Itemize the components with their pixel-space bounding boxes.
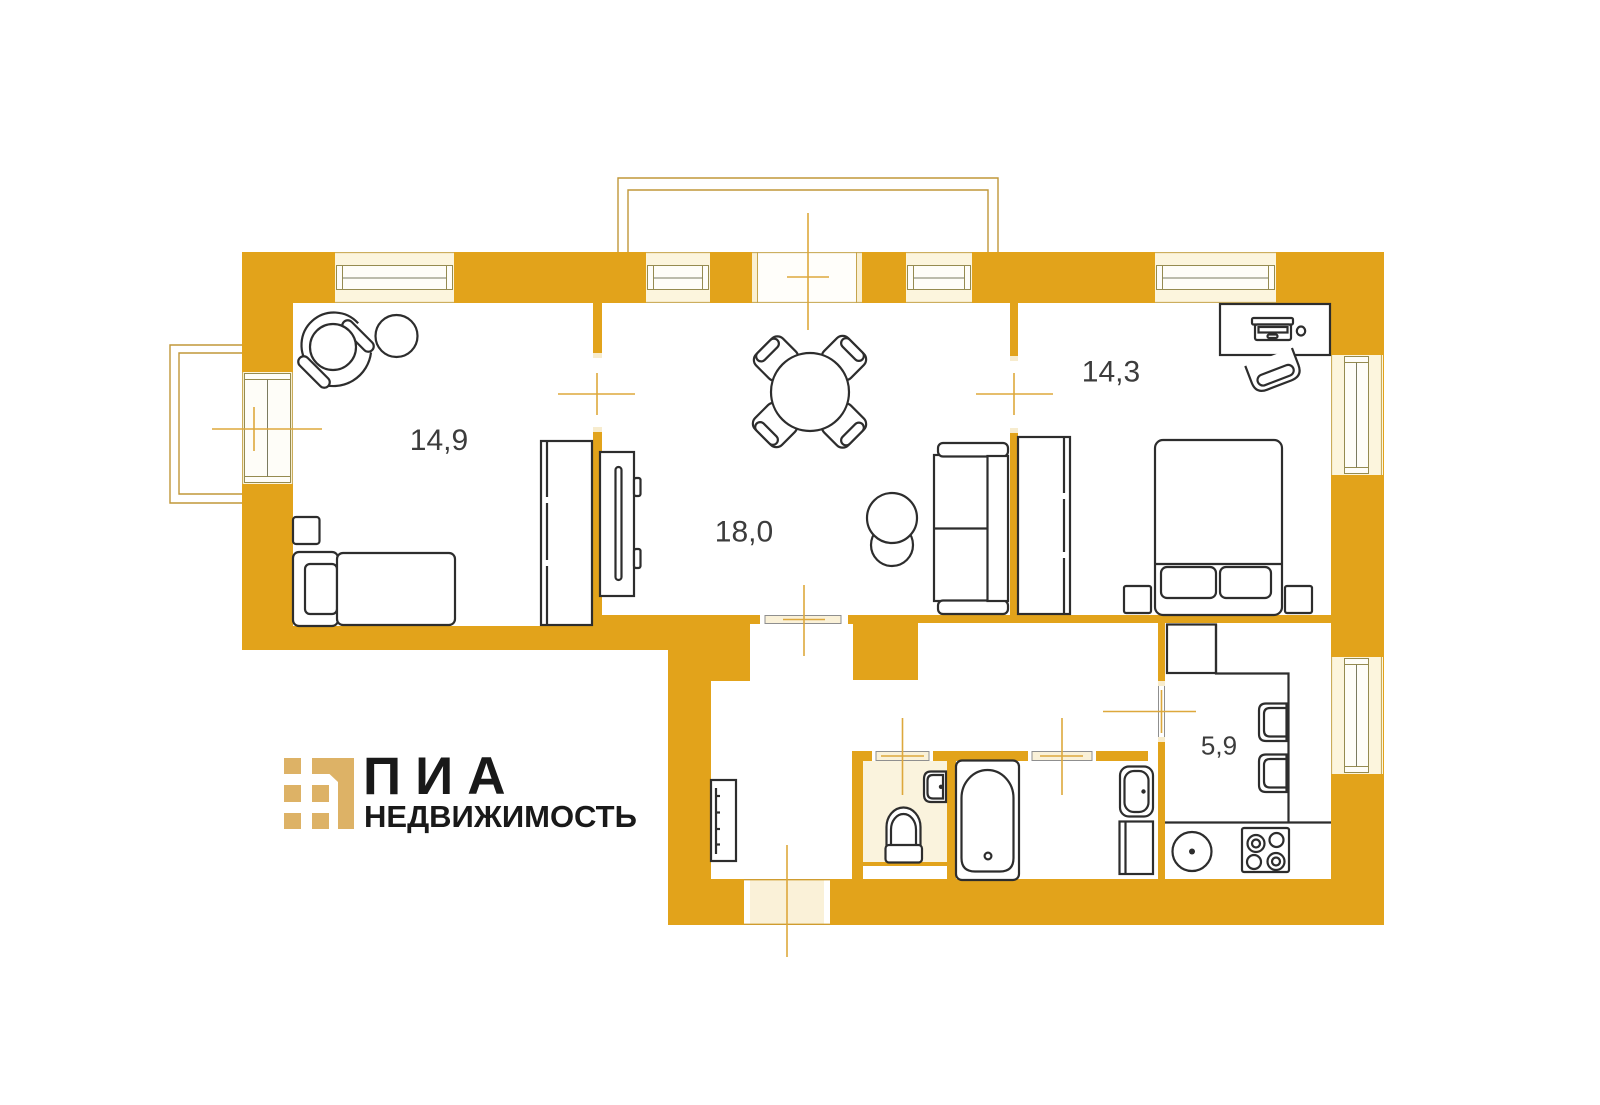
svg-text:14,9: 14,9 xyxy=(410,424,468,457)
svg-text:ПИА: ПИА xyxy=(363,747,519,806)
svg-text:18,0: 18,0 xyxy=(715,516,773,549)
svg-text:5,9: 5,9 xyxy=(1201,731,1237,761)
svg-text:14,3: 14,3 xyxy=(1082,356,1140,389)
svg-text:НЕДВИЖИМОСТЬ: НЕДВИЖИМОСТЬ xyxy=(364,799,637,834)
